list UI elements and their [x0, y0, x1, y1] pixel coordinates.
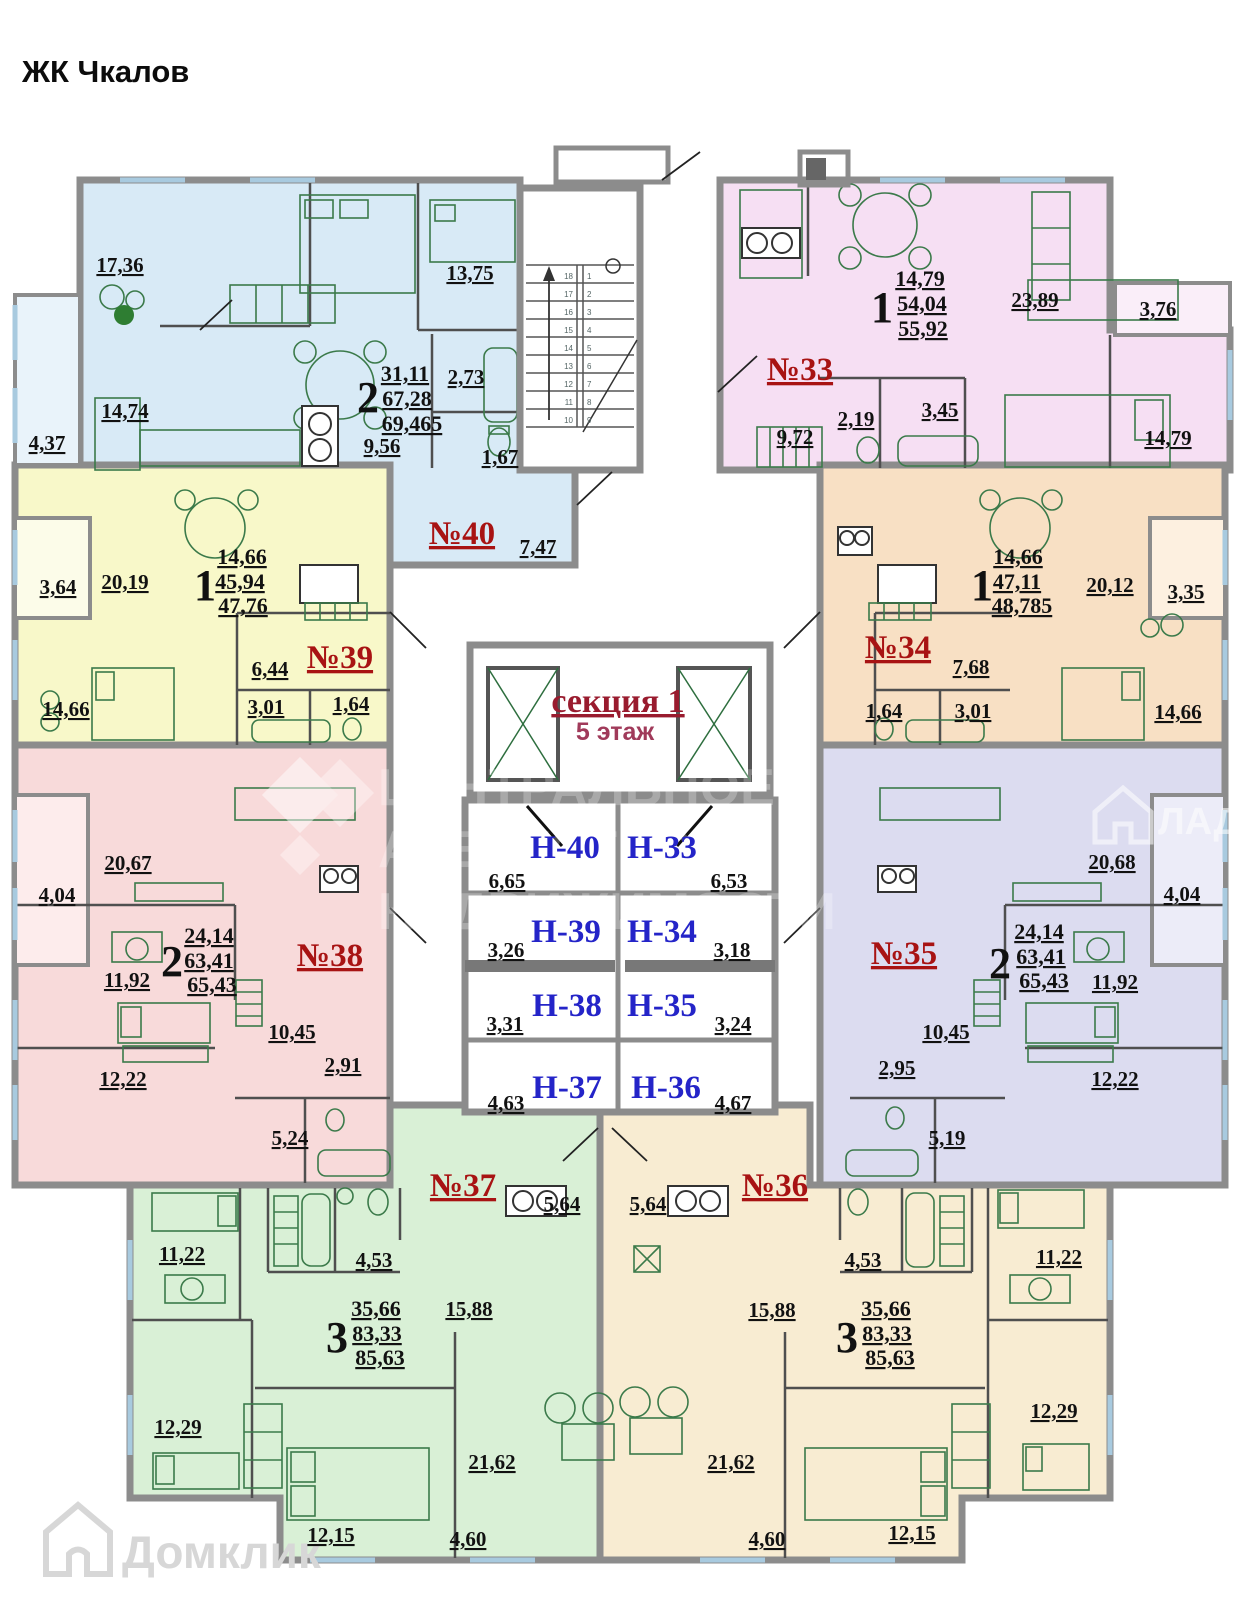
room-area-label: 12,29	[1030, 1399, 1077, 1423]
apartment-area: 45,94	[215, 569, 265, 594]
room-area-label: 2,73	[448, 365, 485, 389]
room-area-label: 5,24	[272, 1126, 309, 1150]
staircase: 18 17 16 15 14 13 12 11 10 1 2 3 4 5 6 7…	[520, 188, 640, 470]
room-area-label: 23,89	[1011, 288, 1058, 312]
room-area-label: 12,22	[99, 1067, 146, 1091]
room-area-label: 11,92	[1092, 970, 1138, 994]
room-area-label: 3,64	[40, 575, 77, 599]
stair-number: 6	[587, 362, 592, 371]
room-area-label: 4,04	[39, 883, 76, 907]
apartment-number: №36	[742, 1168, 808, 1204]
room-area-label: 1,64	[333, 692, 370, 716]
room-area-label: 14,66	[42, 697, 89, 721]
room-area-label: 21,62	[707, 1450, 754, 1474]
stair-number: 16	[564, 308, 573, 317]
total-area: 65,43	[187, 972, 237, 997]
room-area-label: 12,15	[888, 1521, 935, 1545]
stair-number: 17	[564, 290, 573, 299]
room-area-label: 20,12	[1086, 573, 1133, 597]
living-area: 24,14	[1014, 919, 1064, 944]
apartment-number: №40	[429, 516, 495, 552]
agency-watermark-line3: НЕДВИЖИМОСТИ	[378, 883, 836, 941]
room-area-label: 3,45	[922, 398, 959, 422]
room-area-label: 20,67	[104, 851, 151, 875]
domclick-watermark-text: Домклик	[122, 1526, 322, 1578]
room-area-label: 3,76	[1140, 297, 1177, 321]
stair-number: 10	[564, 416, 573, 425]
living-area: 14,66	[993, 544, 1043, 569]
room-area-label: 7,68	[953, 655, 990, 679]
section-title: секция 1	[551, 683, 684, 720]
total-area: 65,43	[1019, 968, 1069, 993]
room-area-label: 14,66	[1154, 700, 1201, 724]
room-area-label: 2,91	[325, 1053, 362, 1077]
living-area: 35,66	[351, 1296, 401, 1321]
apartment-area: 83,33	[862, 1321, 912, 1346]
room-count: 2	[161, 937, 183, 986]
room-area-label: 15,88	[748, 1298, 795, 1322]
room-area-label: 4,60	[749, 1527, 786, 1551]
storage-name: Н-37	[532, 1070, 602, 1106]
room-count: 1	[871, 283, 893, 332]
room-area-label: 1,67	[482, 445, 519, 469]
balcony-39	[15, 518, 90, 618]
agency-watermark-line1: ЦЕНТРАЛЬНОЕ	[378, 759, 775, 817]
apartment-area: 47,11	[993, 569, 1041, 594]
stair-number: 7	[587, 380, 592, 389]
living-area: 31,11	[381, 361, 429, 386]
apartment-area: 63,41	[1016, 944, 1066, 969]
total-area: 48,785	[992, 593, 1053, 618]
entrance-vestibule	[556, 148, 668, 182]
storage-name: Н-33	[627, 830, 697, 866]
storage-area: 3,24	[715, 1012, 752, 1036]
room-area-label: 10,45	[268, 1020, 315, 1044]
apartment-number: №35	[871, 936, 937, 972]
apartment-number: №33	[767, 352, 833, 388]
room-area-label: 3,35	[1168, 580, 1205, 604]
house-icon	[46, 1505, 110, 1574]
room-area-label: 3,01	[955, 699, 992, 723]
total-area: 85,63	[865, 1345, 915, 1370]
stair-number: 13	[564, 362, 573, 371]
storage-area: 6,53	[711, 869, 748, 893]
room-area-label: 2,95	[879, 1056, 916, 1080]
stair-number: 5	[587, 344, 592, 353]
total-area: 85,63	[355, 1345, 405, 1370]
room-area-label: 15,88	[445, 1297, 492, 1321]
room-area-label: 4,53	[845, 1248, 882, 1272]
room-area-label: 11,22	[159, 1242, 205, 1266]
room-count: 1	[971, 561, 993, 610]
total-area: 55,92	[898, 316, 948, 341]
stair-number: 18	[564, 272, 573, 281]
apartment-number: №34	[865, 630, 931, 666]
room-count: 3	[326, 1313, 348, 1362]
storage-area: 4,67	[715, 1091, 752, 1115]
room-area-label: 4,37	[29, 431, 66, 455]
total-area: 47,76	[218, 593, 268, 618]
page-title: ЖК Чкалов	[21, 54, 189, 89]
room-area-label: 5,64	[544, 1192, 581, 1216]
apartment-area: 63,41	[184, 948, 234, 973]
room-count: 2	[989, 939, 1011, 988]
room-area-label: 9,56	[364, 434, 401, 458]
apartment-number: №37	[430, 1168, 496, 1204]
storage-name: Н-34	[627, 914, 697, 950]
stair-number: 4	[587, 326, 592, 335]
room-count: 3	[836, 1313, 858, 1362]
balcony-38	[15, 795, 88, 965]
living-area: 24,14	[184, 923, 234, 948]
ladis-watermark-text: ЛАДИС	[1158, 801, 1236, 843]
living-area: 14,66	[217, 544, 267, 569]
apartment-area: 67,28	[382, 386, 432, 411]
storage-area: 3,26	[488, 938, 525, 962]
room-area-label: 11,22	[1036, 1245, 1082, 1269]
floor-label: 5 этаж	[576, 718, 654, 746]
stair-number: 8	[587, 398, 592, 407]
room-area-label: 12,22	[1091, 1067, 1138, 1091]
room-area-label: 2,19	[838, 407, 875, 431]
living-area: 35,66	[861, 1296, 911, 1321]
floor-plan-canvas: 18 17 16 15 14 13 12 11 10 1 2 3 4 5 6 7…	[0, 0, 1236, 1600]
storage-name: Н-38	[532, 988, 602, 1024]
room-area-label: 3,01	[248, 695, 285, 719]
total-area: 69,465	[382, 411, 443, 436]
storage-area: 3,31	[487, 1012, 524, 1036]
room-count: 2	[357, 373, 379, 422]
storage-name: Н-36	[631, 1070, 701, 1106]
room-count: 1	[194, 561, 216, 610]
room-area-label: 20,19	[101, 570, 148, 594]
storage-name: Н-40	[530, 830, 600, 866]
stair-number: 15	[564, 326, 573, 335]
stair-number: 2	[587, 290, 592, 299]
room-area-label: 7,47	[520, 535, 557, 559]
room-area-label: 9,72	[777, 425, 814, 449]
room-area-label: 12,29	[154, 1415, 201, 1439]
room-area-label: 14,74	[101, 399, 149, 423]
room-area-label: 11,92	[104, 968, 150, 992]
room-area-label: 4,04	[1164, 882, 1201, 906]
room-area-label: 12,15	[307, 1523, 354, 1547]
stair-number: 11	[565, 398, 574, 407]
storage-area: 6,65	[489, 869, 526, 893]
stair-number: 14	[564, 344, 573, 353]
living-area: 14,79	[895, 266, 945, 291]
room-area-label: 21,62	[468, 1450, 515, 1474]
room-area-label: 5,64	[630, 1192, 667, 1216]
room-area-label: 6,44	[252, 657, 289, 681]
floor-plan-page: 18 17 16 15 14 13 12 11 10 1 2 3 4 5 6 7…	[0, 0, 1236, 1600]
room-area-label: 17,36	[96, 253, 143, 277]
apartment-number: №39	[307, 640, 373, 676]
storage-name: Н-35	[627, 988, 697, 1024]
apartment-area: 54,04	[897, 291, 947, 316]
storage-name: Н-39	[531, 914, 601, 950]
room-area-label: 1,64	[866, 699, 903, 723]
storage-area: 4,63	[488, 1091, 525, 1115]
stair-number: 1	[587, 272, 592, 281]
stair-number: 3	[587, 308, 592, 317]
stair-number: 12	[564, 380, 573, 389]
room-area-label: 4,53	[356, 1248, 393, 1272]
room-area-label: 5,19	[929, 1126, 966, 1150]
room-area-label: 20,68	[1088, 850, 1135, 874]
room-area-label: 13,75	[446, 261, 493, 285]
apartment-area: 83,33	[352, 1321, 402, 1346]
stair-number: 9	[587, 416, 592, 425]
room-area-label: 10,45	[922, 1020, 969, 1044]
room-area-label: 4,60	[450, 1527, 487, 1551]
apartment-number: №38	[297, 938, 363, 974]
storage-area: 3,18	[714, 938, 751, 962]
room-area-label: 14,79	[1144, 426, 1191, 450]
